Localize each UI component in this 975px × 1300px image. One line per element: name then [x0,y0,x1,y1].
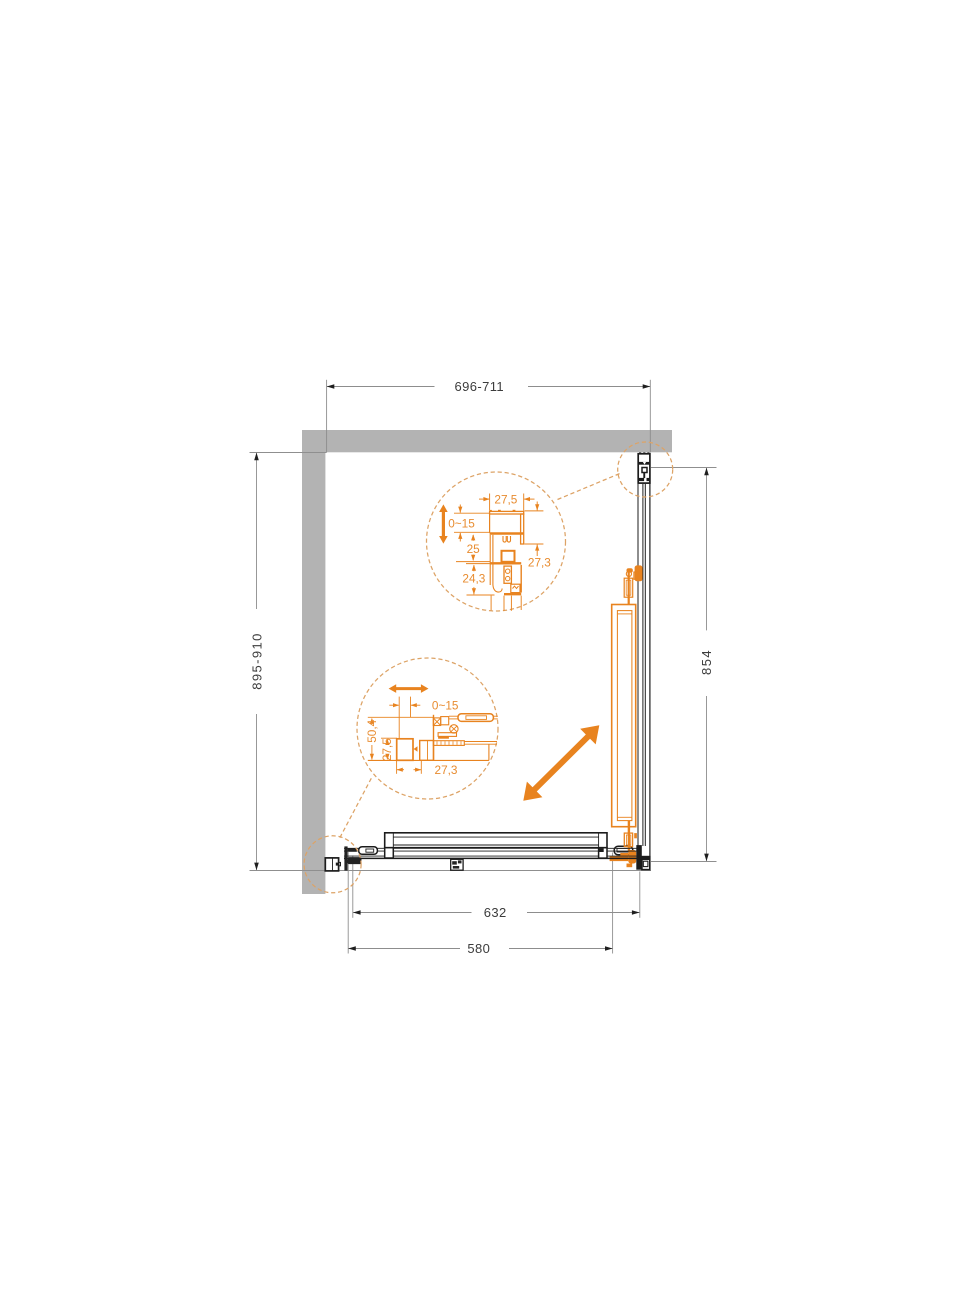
svg-text:27,3: 27,3 [435,763,458,777]
svg-text:0~15: 0~15 [432,699,459,713]
svg-text:632: 632 [484,905,507,920]
svg-text:50,4: 50,4 [365,719,379,742]
svg-text:27,3: 27,3 [528,555,551,569]
svg-text:580: 580 [467,941,490,956]
svg-text:27,5: 27,5 [380,738,394,761]
svg-text:25: 25 [467,542,481,556]
svg-text:24,3: 24,3 [462,571,485,585]
svg-text:696-711: 696-711 [455,379,505,394]
svg-text:27,5: 27,5 [494,492,517,506]
svg-text:895-910: 895-910 [249,632,264,690]
svg-text:854: 854 [699,649,714,675]
svg-text:0~15: 0~15 [448,517,475,531]
